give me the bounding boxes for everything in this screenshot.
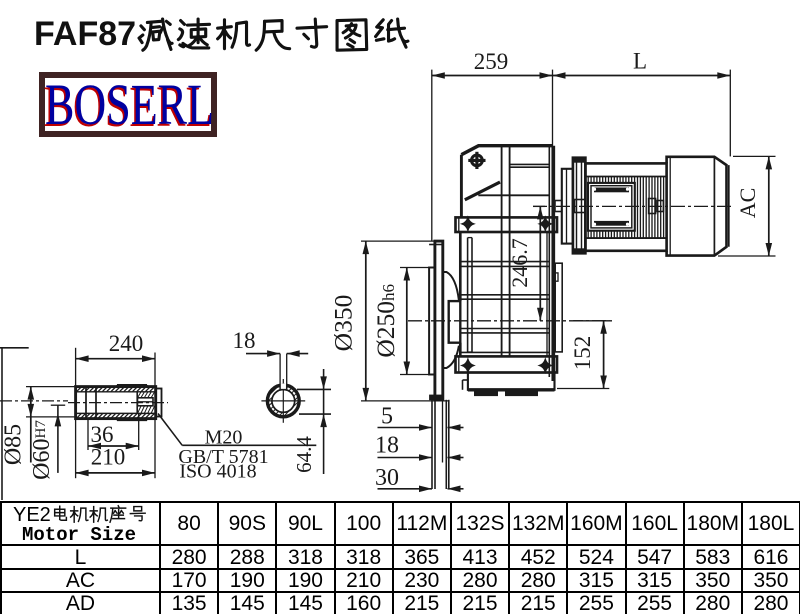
svg-text:Ø85: Ø85 — [1, 424, 27, 465]
svg-text:AC: AC — [735, 188, 760, 219]
svg-text:Ø60H7: Ø60H7 — [29, 420, 55, 480]
svg-text:64.4: 64.4 — [292, 436, 316, 473]
svg-text:18: 18 — [233, 328, 256, 353]
svg-text:152: 152 — [570, 336, 595, 371]
svg-text:36: 36 — [91, 422, 114, 447]
svg-text:18: 18 — [375, 432, 399, 458]
svg-text:246.7: 246.7 — [507, 238, 532, 288]
svg-text:30: 30 — [375, 465, 399, 491]
svg-text:ISO 4018: ISO 4018 — [179, 461, 256, 483]
svg-text:Ø250h6: Ø250h6 — [371, 284, 400, 358]
svg-text:5: 5 — [381, 404, 393, 430]
svg-text:210: 210 — [91, 445, 126, 470]
svg-text:240: 240 — [109, 331, 144, 356]
svg-text:L: L — [633, 49, 647, 74]
svg-text:259: 259 — [474, 49, 509, 74]
svg-text:Ø350: Ø350 — [329, 295, 358, 352]
